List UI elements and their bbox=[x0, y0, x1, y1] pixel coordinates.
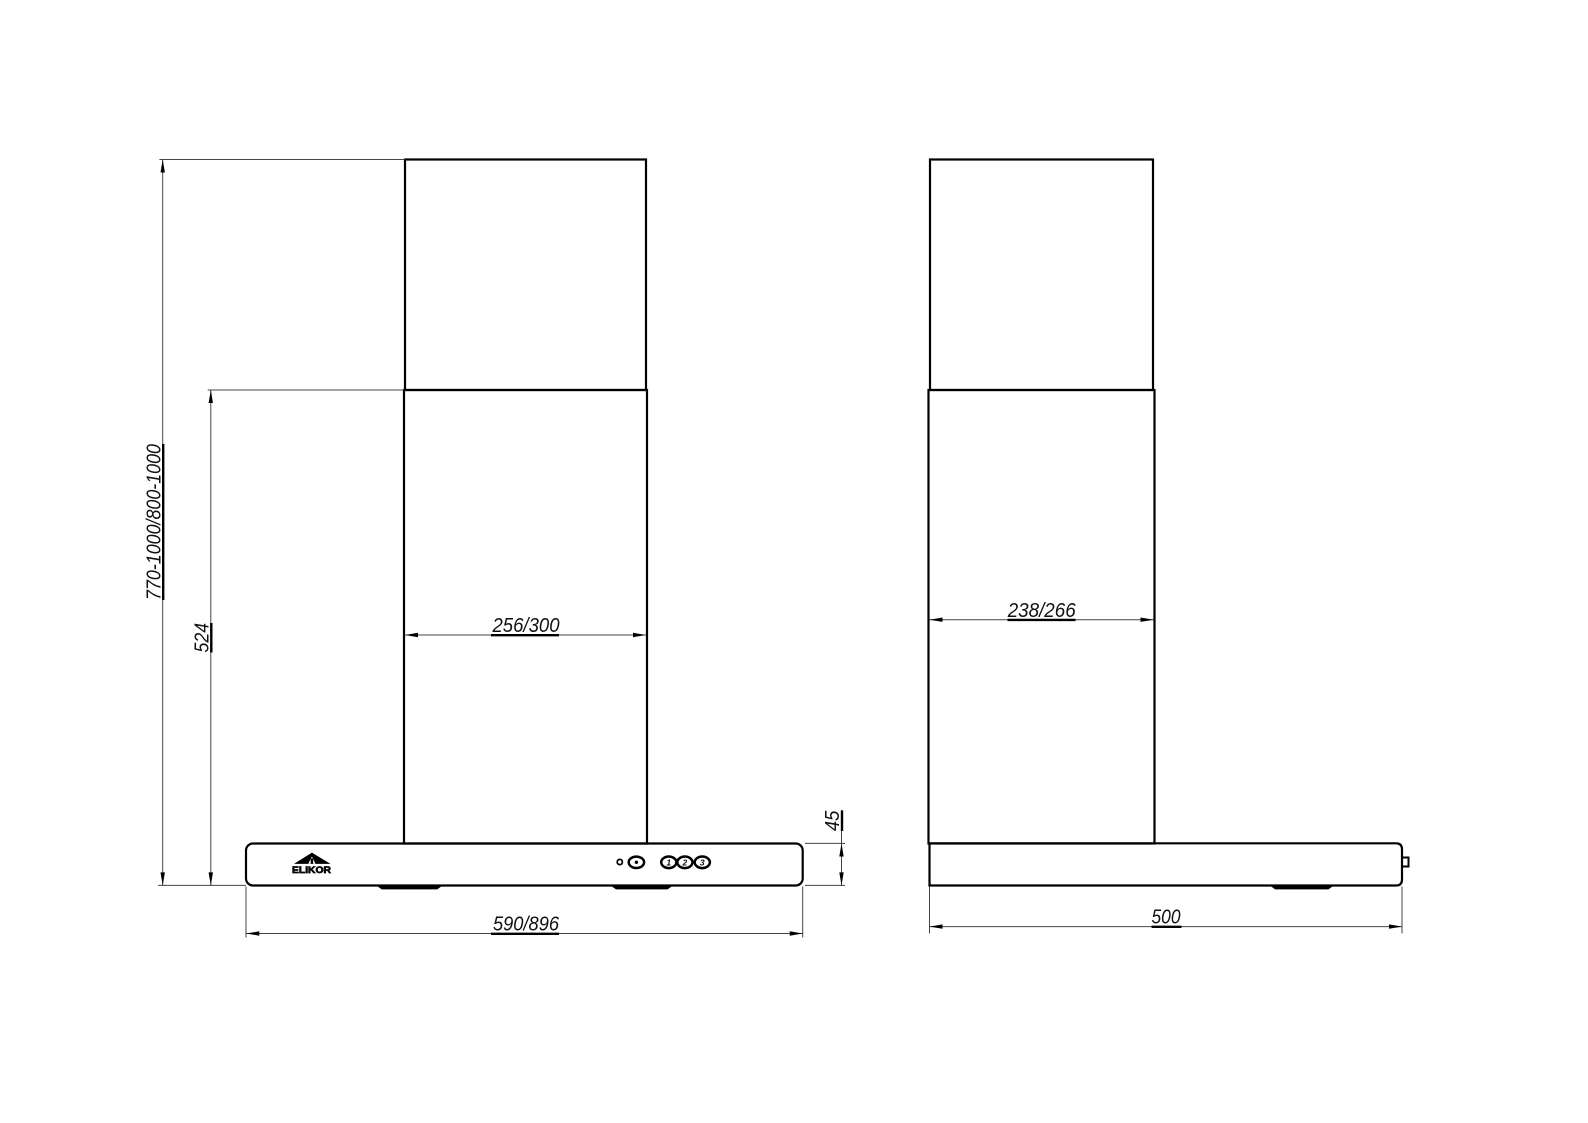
svg-text:256/300: 256/300 bbox=[492, 615, 560, 637]
svg-text:590/896: 590/896 bbox=[493, 913, 560, 935]
svg-text:ELIKOR: ELIKOR bbox=[292, 865, 331, 876]
svg-text:3: 3 bbox=[700, 858, 705, 868]
svg-text:500: 500 bbox=[1152, 906, 1181, 928]
svg-text:238/266: 238/266 bbox=[1007, 600, 1077, 622]
svg-text:1: 1 bbox=[666, 858, 671, 868]
svg-text:524: 524 bbox=[191, 623, 213, 653]
svg-text:770-1000/800-1000: 770-1000/800-1000 bbox=[143, 444, 165, 600]
svg-text:45: 45 bbox=[822, 810, 844, 831]
svg-text:2: 2 bbox=[682, 858, 688, 868]
